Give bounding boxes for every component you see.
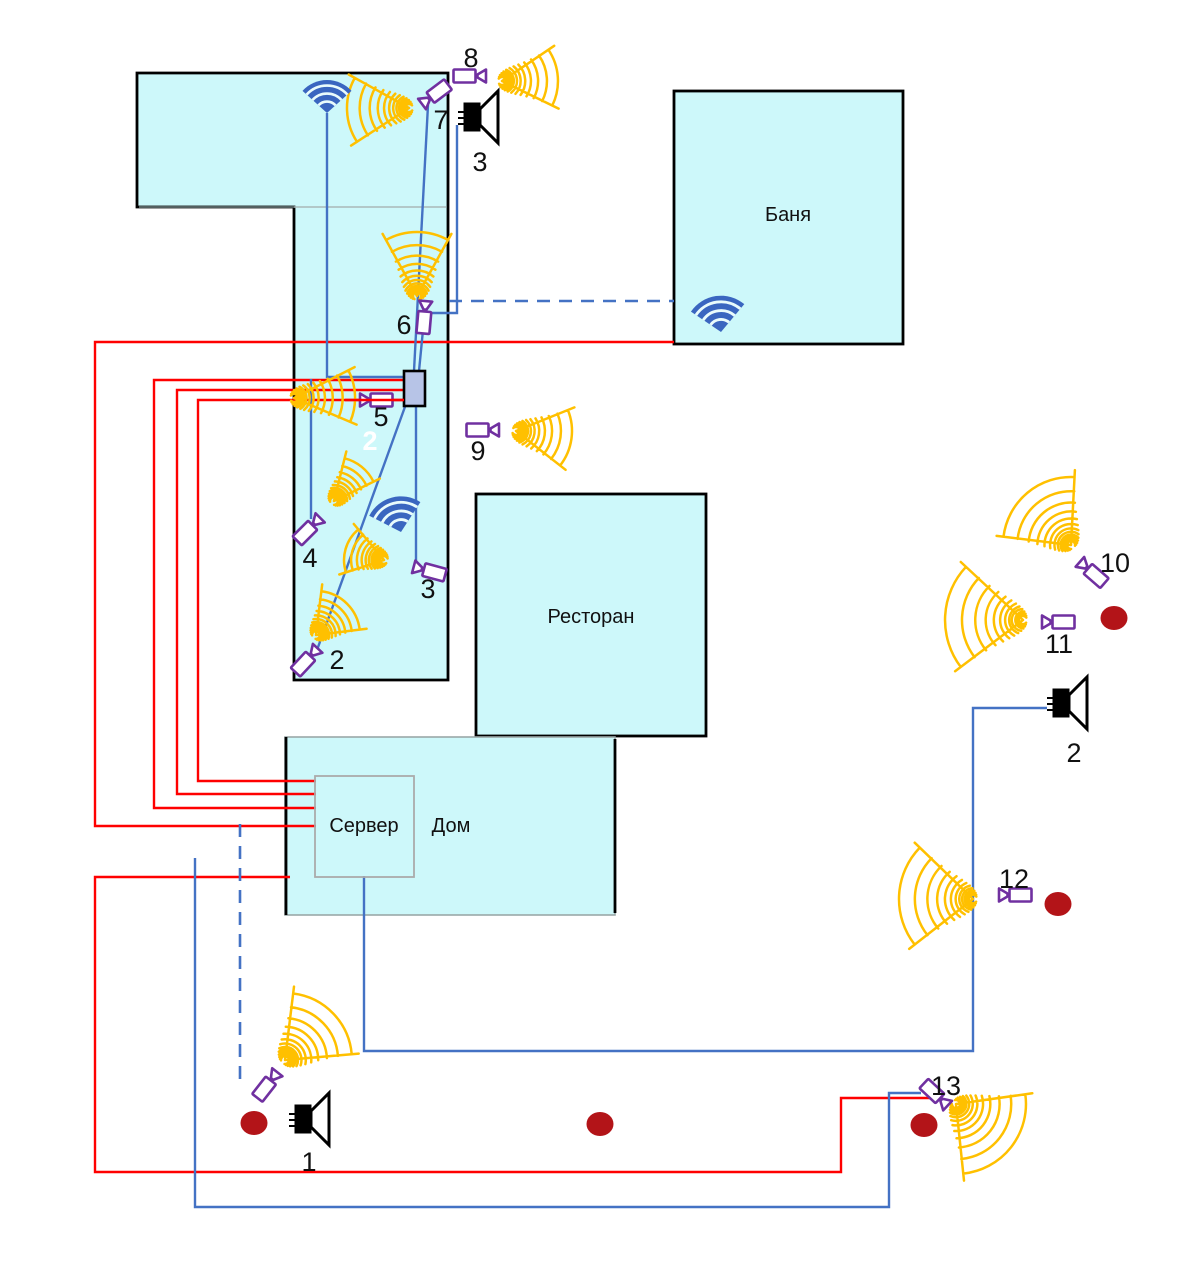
svg-text:Ресторан: Ресторан bbox=[548, 606, 635, 628]
svg-text:2: 2 bbox=[1066, 738, 1081, 768]
svg-text:3: 3 bbox=[420, 574, 435, 604]
svg-text:6: 6 bbox=[396, 310, 411, 340]
svg-text:10: 10 bbox=[1100, 548, 1130, 578]
svg-text:11: 11 bbox=[1045, 629, 1073, 659]
svg-text:4: 4 bbox=[302, 543, 317, 573]
svg-text:13: 13 bbox=[931, 1071, 961, 1101]
svg-text:7: 7 bbox=[433, 105, 448, 135]
svg-text:9: 9 bbox=[470, 436, 485, 466]
svg-text:2: 2 bbox=[329, 645, 344, 675]
svg-text:Баня: Баня bbox=[765, 204, 811, 226]
svg-text:8: 8 bbox=[463, 43, 478, 73]
svg-text:Сервер: Сервер bbox=[329, 815, 398, 837]
svg-text:Дом: Дом bbox=[432, 815, 471, 837]
svg-text:3: 3 bbox=[472, 147, 487, 177]
svg-text:12: 12 bbox=[999, 864, 1029, 894]
svg-text:2: 2 bbox=[362, 426, 377, 456]
svg-text:1: 1 bbox=[301, 1147, 316, 1177]
